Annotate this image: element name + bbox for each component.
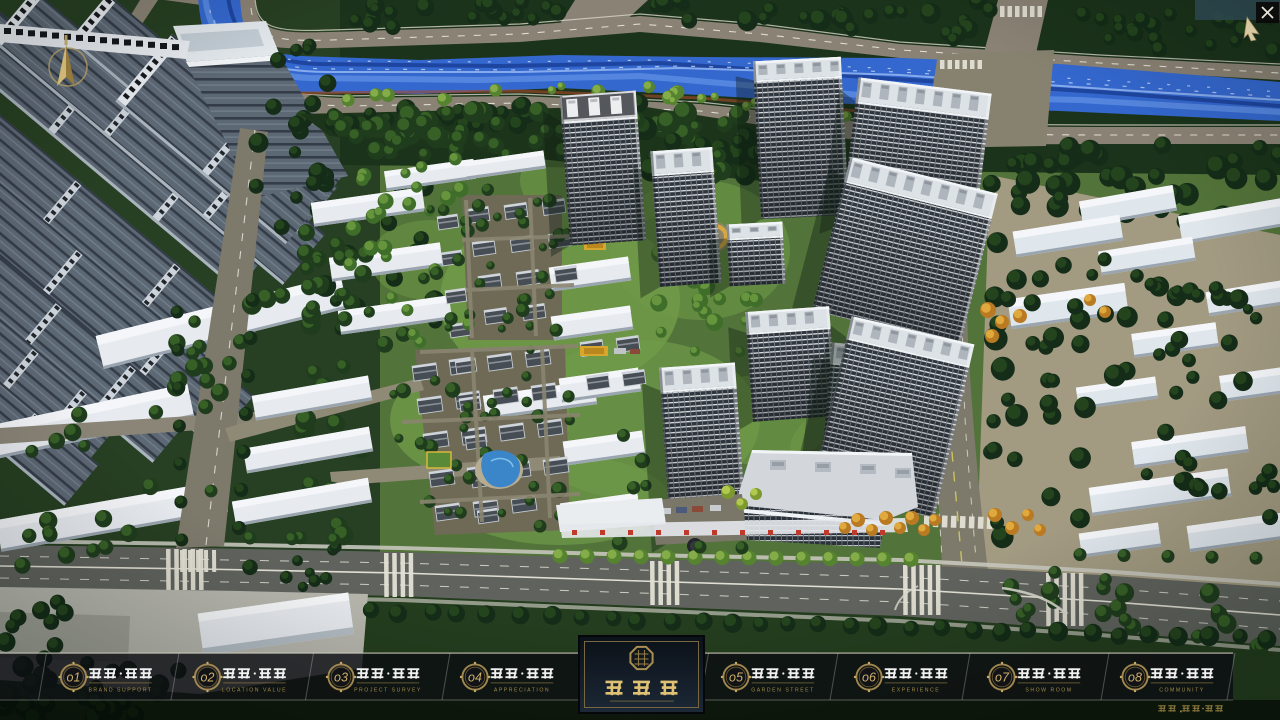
svg-text:SHOW ROOM: SHOW ROOM	[1025, 688, 1072, 694]
svg-text:o2: o2	[201, 671, 215, 685]
svg-text:APPRECIATION: APPRECIATION	[494, 688, 550, 694]
svg-text:GARDEN STREET: GARDEN STREET	[751, 688, 815, 694]
svg-text:PROJECT SURVEY: PROJECT SURVEY	[354, 688, 422, 694]
svg-text:o6: o6	[862, 671, 876, 685]
svg-text:LOCATION VALUE: LOCATION VALUE	[222, 688, 287, 694]
svg-text:o3: o3	[334, 671, 348, 685]
svg-text:o5: o5	[729, 671, 743, 685]
svg-text:o7: o7	[995, 671, 1010, 685]
svg-text:o8: o8	[1128, 671, 1142, 685]
svg-text:o4: o4	[468, 671, 482, 685]
svg-text:o1: o1	[67, 671, 81, 685]
svg-text:BRAND SUPPORT: BRAND SUPPORT	[88, 688, 152, 694]
svg-text:EXPERIENCE: EXPERIENCE	[892, 688, 940, 694]
svg-text:COMMUNITY: COMMUNITY	[1159, 688, 1205, 694]
